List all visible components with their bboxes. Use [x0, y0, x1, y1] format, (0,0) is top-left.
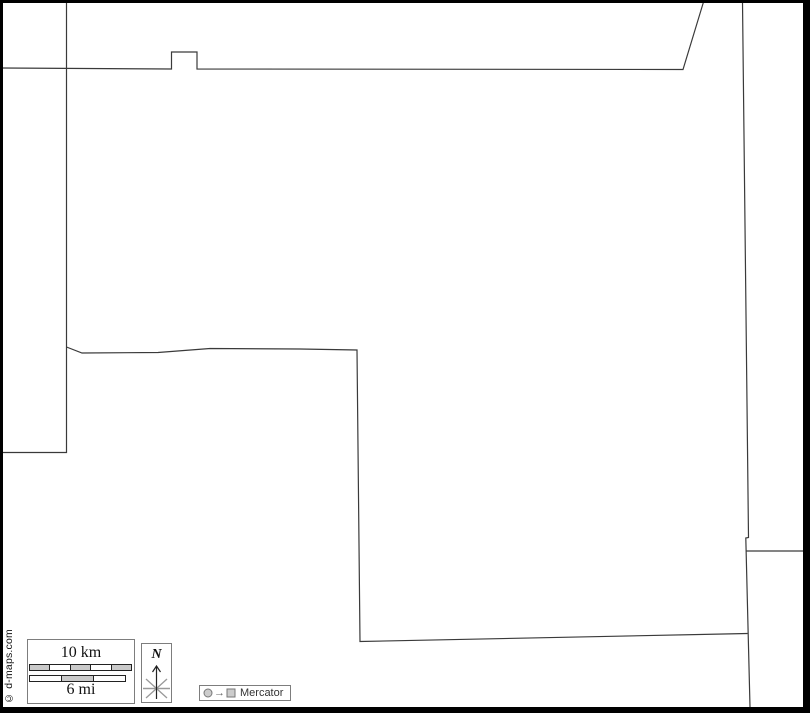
- scale-segment: [30, 665, 50, 670]
- scale-mi-label: 6 mi: [28, 682, 134, 698]
- compass-north-label: N: [142, 647, 171, 663]
- boundary-west-boundary: [2, 3, 67, 453]
- boundary-north-boundary: [2, 2, 704, 70]
- scale-segment: [50, 665, 70, 670]
- frame-right: [803, 0, 810, 713]
- globe-circle-icon: [203, 688, 213, 698]
- boundary-central-boundary: [67, 347, 748, 642]
- scale-segment: [91, 665, 111, 670]
- scale-km-bar: [29, 664, 132, 671]
- scale-segment: [112, 665, 131, 670]
- scale-bar-box: 10 km 6 mi: [27, 639, 135, 704]
- north-arrow-icon: [142, 664, 171, 702]
- map-outline-svg: [0, 0, 810, 713]
- projection-name: Mercator: [240, 686, 283, 700]
- frame-left: [0, 0, 3, 713]
- frame-bottom: [0, 707, 810, 713]
- scale-segment: [94, 676, 125, 681]
- scale-segment: [71, 665, 91, 670]
- map-square-icon: [226, 688, 236, 698]
- map-page: 10 km 6 mi N → Mercator © d-maps.com: [0, 0, 810, 713]
- copyright-credit: © d-maps.com: [3, 629, 15, 704]
- projection-legend: → Mercator: [199, 685, 291, 701]
- projection-arrow-icon: →: [214, 686, 225, 700]
- scale-segment: [30, 676, 62, 681]
- compass-box: N: [141, 643, 172, 703]
- scale-km-label: 10 km: [28, 645, 134, 661]
- frame-top: [0, 0, 810, 3]
- boundary-east-boundary: [743, 2, 751, 707]
